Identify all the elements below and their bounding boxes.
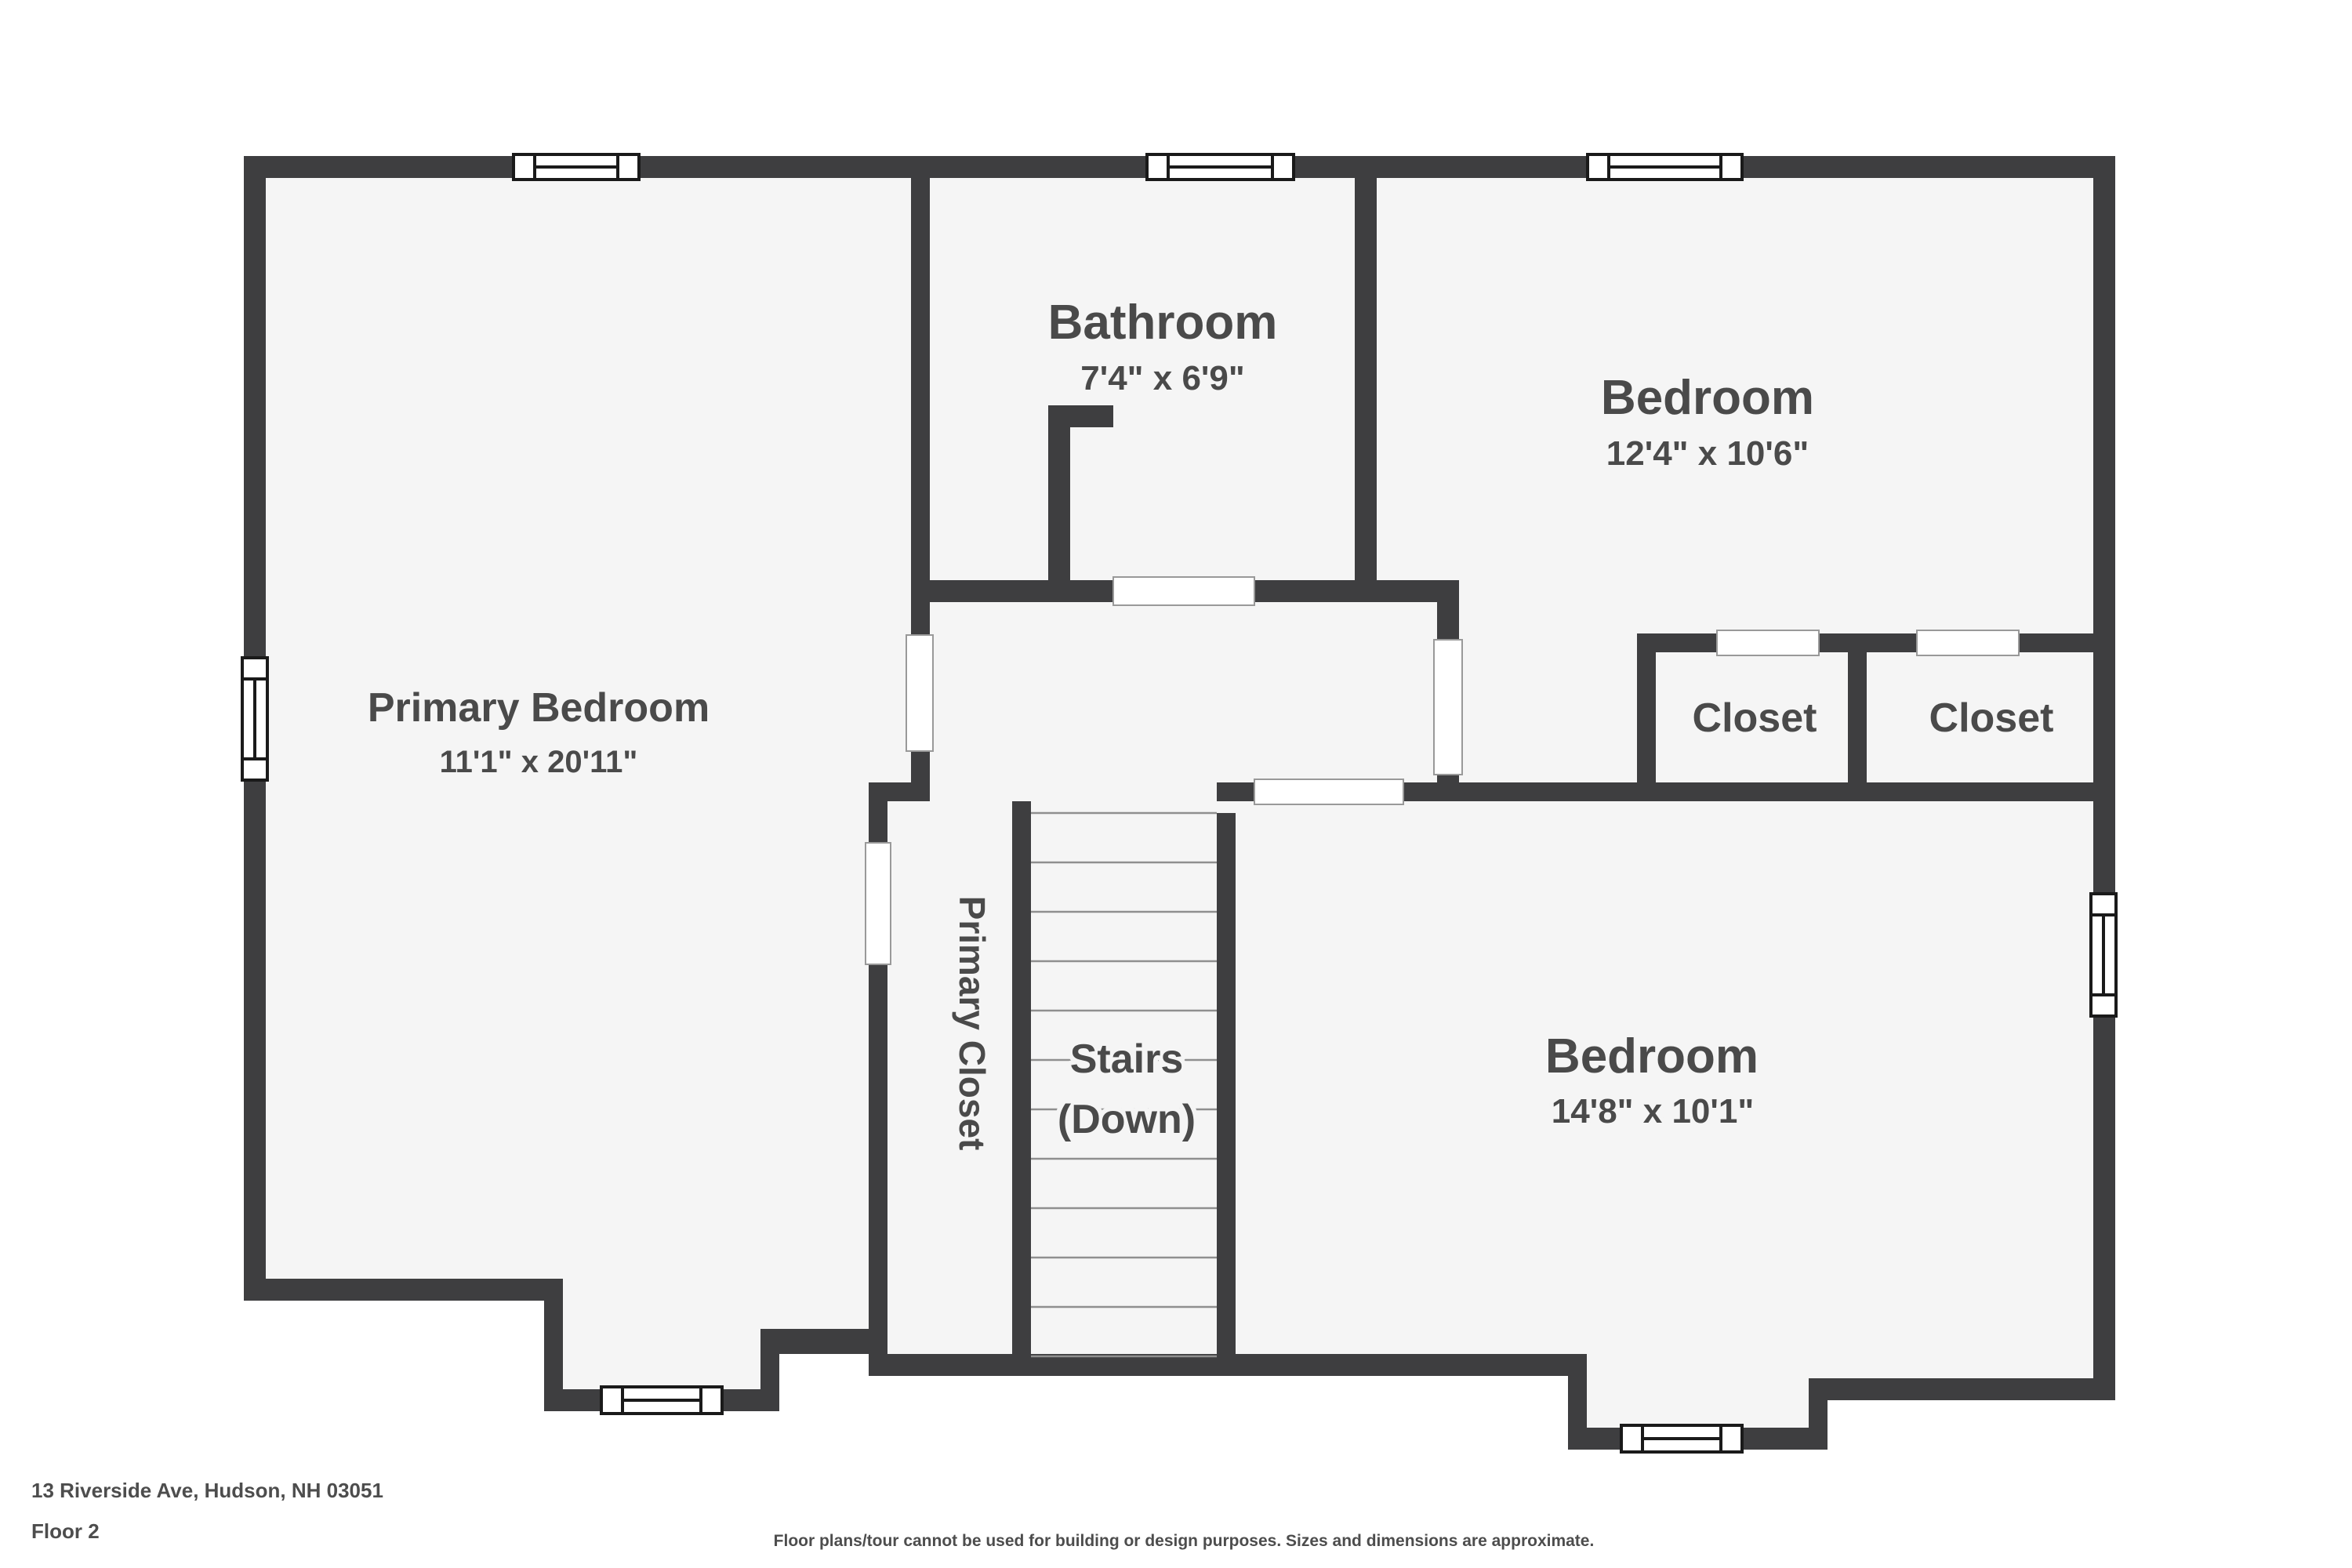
wall-bottom-left <box>244 1279 563 1301</box>
bathroom-label: Bathroom <box>1048 296 1278 350</box>
footer-address: 13 Riverside Ave, Hudson, NH 03051 <box>31 1479 383 1502</box>
stairs-label-line2: (Down) <box>1058 1097 1196 1142</box>
window <box>514 154 639 180</box>
window <box>1147 154 1294 180</box>
door-opening <box>1717 630 1819 655</box>
closet-left-label: Closet <box>1693 695 1817 741</box>
closet-right-label: Closet <box>1929 695 2054 741</box>
door-opening <box>1434 640 1462 775</box>
wall-connector <box>760 1329 887 1354</box>
window <box>601 1387 722 1414</box>
footer-floor-label: Floor 2 <box>31 1519 100 1543</box>
stairs-label-line1: Stairs <box>1070 1036 1184 1082</box>
bedroom-top-label: Bedroom <box>1601 371 1814 425</box>
footer-disclaimer: Floor plans/tour cannot be used for buil… <box>774 1532 1595 1550</box>
wall-bottom-right <box>1809 1378 2115 1400</box>
window <box>2091 894 2116 1016</box>
bathroom-dims: 7'4" x 6'9" <box>1080 359 1244 397</box>
bedroom-bottom-dims: 14'8" x 10'1" <box>1552 1092 1754 1131</box>
wall-right <box>2093 156 2115 1400</box>
window <box>1588 154 1742 180</box>
door-opening <box>1113 577 1254 605</box>
floor-plan: Primary Bedroom 11'1" x 20'11" Bathroom … <box>0 0 2352 1568</box>
primary-closet-label: Primary Closet <box>952 896 993 1151</box>
door-opening <box>1254 779 1403 804</box>
primary-bedroom-dims: 11'1" x 20'11" <box>440 745 638 779</box>
wall-stairs-west <box>1012 801 1031 1354</box>
door-opening <box>906 635 933 751</box>
window <box>1621 1425 1742 1452</box>
floor-plan-page: Primary Bedroom 11'1" x 20'11" Bathroom … <box>0 0 2352 1568</box>
door-opening <box>1917 630 2019 655</box>
wall-closet-divider <box>1848 633 1867 801</box>
window <box>242 658 267 780</box>
wall-stairs-east <box>1217 813 1236 1376</box>
wall-bathroom-east <box>1355 178 1377 602</box>
primary-bedroom-label: Primary Bedroom <box>368 685 710 731</box>
bedroom-top-dims: 12'4" x 10'6" <box>1606 434 1809 473</box>
wall-bathroom-stub-leg <box>1048 405 1070 602</box>
wall-closet-left-west <box>1637 633 1656 801</box>
door-opening <box>866 843 891 964</box>
wall-closet-north <box>1637 633 2115 652</box>
bedroom-bottom-label: Bedroom <box>1545 1029 1759 1083</box>
